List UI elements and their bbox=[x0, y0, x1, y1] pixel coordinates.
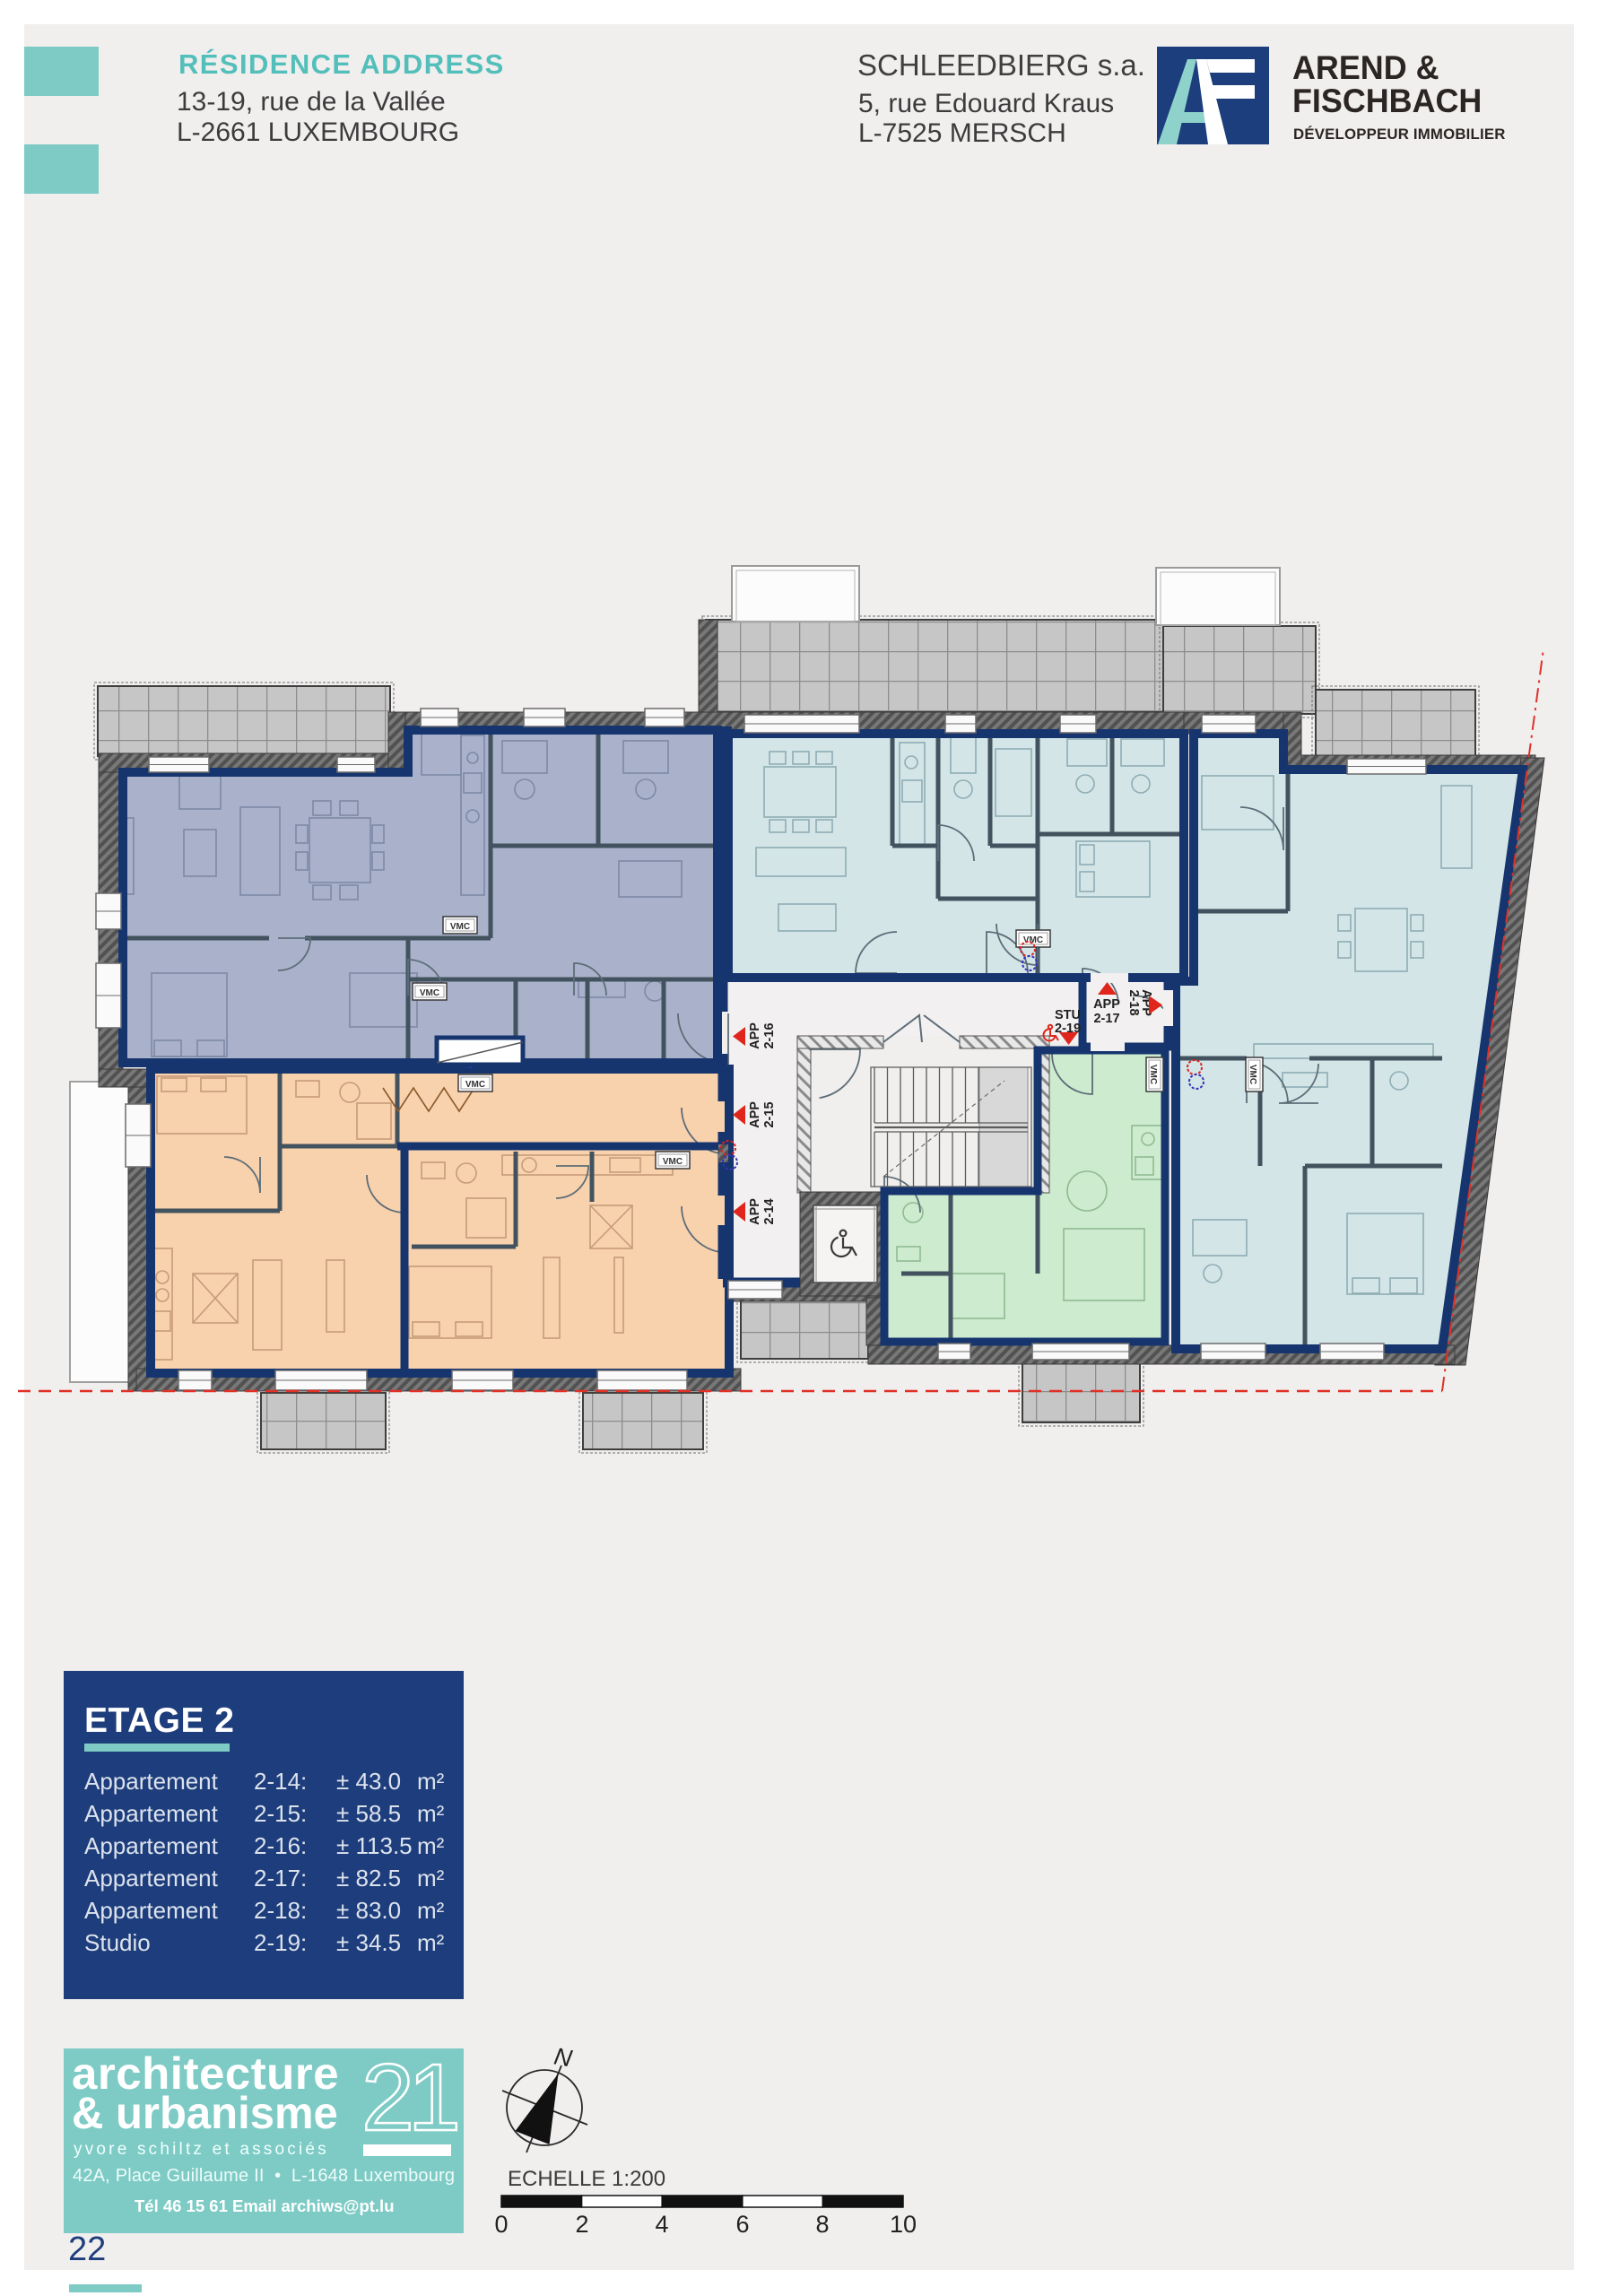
svg-text:APP: APP bbox=[1093, 997, 1120, 1012]
svg-text:6: 6 bbox=[735, 2211, 749, 2238]
svg-text:4: 4 bbox=[655, 2211, 668, 2238]
svg-text:2-18: 2-18 bbox=[1126, 989, 1141, 1015]
svg-text:21: 21 bbox=[361, 2050, 457, 2151]
svg-text:0: 0 bbox=[494, 2211, 508, 2238]
svg-text:VMC: VMC bbox=[663, 1157, 683, 1167]
svg-text:APP: APP bbox=[748, 1101, 762, 1128]
svg-text:2-14: 2-14 bbox=[762, 1198, 777, 1224]
svg-text:APP: APP bbox=[748, 1022, 762, 1049]
svg-text:VMC: VMC bbox=[1248, 1065, 1257, 1084]
svg-text:VMC: VMC bbox=[450, 922, 470, 932]
svg-text:8: 8 bbox=[815, 2211, 829, 2238]
svg-text:10: 10 bbox=[890, 2211, 917, 2238]
svg-text:ECHELLE 1:200: ECHELLE 1:200 bbox=[508, 2167, 665, 2191]
svg-text:VMC: VMC bbox=[1023, 935, 1043, 945]
svg-text:APP: APP bbox=[748, 1198, 762, 1225]
svg-text:VMC: VMC bbox=[1148, 1065, 1158, 1084]
svg-text:N: N bbox=[552, 2043, 575, 2073]
svg-text:STU: STU bbox=[1055, 1008, 1081, 1022]
svg-text:2-15: 2-15 bbox=[762, 1101, 777, 1127]
svg-text:2-17: 2-17 bbox=[1093, 1012, 1119, 1026]
svg-text:2: 2 bbox=[575, 2211, 588, 2238]
svg-text:VMC: VMC bbox=[420, 988, 439, 998]
svg-text:VMC: VMC bbox=[465, 1080, 485, 1090]
svg-text:2-16: 2-16 bbox=[762, 1022, 777, 1048]
